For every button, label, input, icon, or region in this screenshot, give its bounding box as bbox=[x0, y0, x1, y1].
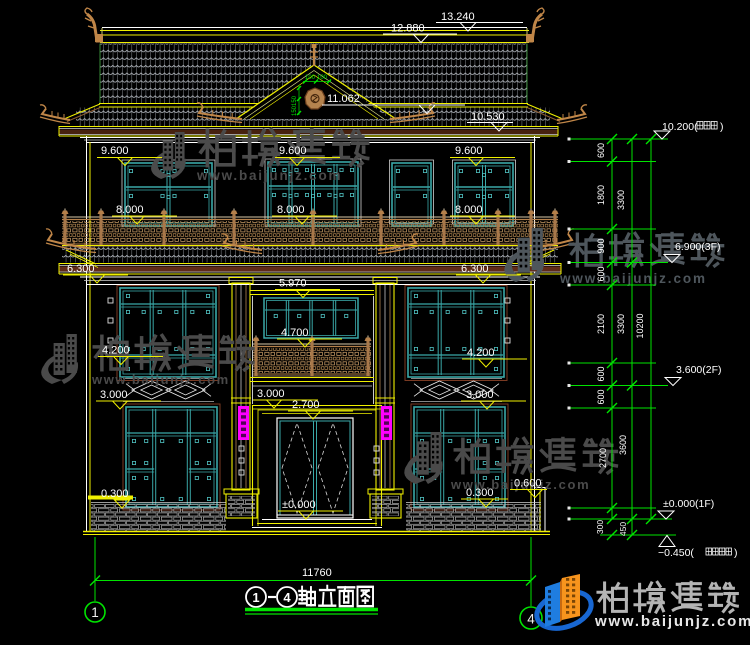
svg-text:3300: 3300 bbox=[616, 314, 626, 334]
svg-text:6.300: 6.300 bbox=[461, 263, 489, 275]
svg-text:10.530: 10.530 bbox=[471, 111, 505, 123]
svg-text:±0.000(1F): ±0.000(1F) bbox=[663, 498, 714, 510]
svg-text:2.700: 2.700 bbox=[292, 399, 320, 411]
svg-text:−0.450(: −0.450( bbox=[658, 547, 694, 559]
svg-text:6.900(3F): 6.900(3F) bbox=[675, 241, 721, 253]
svg-text:www.baijunjz.com: www.baijunjz.com bbox=[196, 168, 342, 183]
svg-text:1800: 1800 bbox=[596, 185, 606, 205]
svg-text:8.000: 8.000 bbox=[116, 204, 144, 216]
svg-text:3.000: 3.000 bbox=[100, 389, 128, 401]
svg-text:9.600: 9.600 bbox=[455, 145, 483, 157]
svg-text:3.000: 3.000 bbox=[257, 388, 285, 400]
svg-text:2700: 2700 bbox=[598, 448, 608, 468]
svg-text:9.600: 9.600 bbox=[279, 145, 307, 157]
svg-text:11.062: 11.062 bbox=[327, 93, 360, 105]
svg-text:300: 300 bbox=[595, 520, 605, 534]
svg-text:www.baijunjz.com: www.baijunjz.com bbox=[91, 372, 230, 387]
svg-text:0.300: 0.300 bbox=[101, 488, 129, 500]
svg-text:100: 100 bbox=[317, 75, 328, 81]
svg-text:www.baijunjz.com: www.baijunjz.com bbox=[594, 613, 750, 630]
svg-text:450: 450 bbox=[618, 522, 628, 536]
svg-text:1: 1 bbox=[91, 605, 99, 620]
svg-text:600: 600 bbox=[596, 143, 606, 158]
svg-text:600: 600 bbox=[596, 266, 606, 281]
svg-text:): ) bbox=[720, 121, 724, 133]
svg-text:11760: 11760 bbox=[302, 567, 332, 579]
svg-text:10200: 10200 bbox=[635, 313, 645, 338]
svg-text:4: 4 bbox=[527, 612, 535, 627]
svg-text:6.300: 6.300 bbox=[67, 263, 95, 275]
svg-text:2100: 2100 bbox=[596, 314, 606, 334]
svg-text:4: 4 bbox=[283, 590, 291, 605]
svg-text:): ) bbox=[734, 547, 738, 559]
svg-text:3300: 3300 bbox=[616, 190, 626, 210]
svg-text:1: 1 bbox=[252, 590, 259, 605]
svg-text:600: 600 bbox=[596, 366, 606, 381]
svg-text:0.300: 0.300 bbox=[466, 487, 494, 499]
svg-text:600: 600 bbox=[596, 389, 606, 404]
svg-text:3.600(2F): 3.600(2F) bbox=[676, 364, 722, 376]
svg-text:4.200: 4.200 bbox=[102, 345, 130, 357]
svg-text:www.baijunjz.com: www.baijunjz.com bbox=[559, 271, 707, 286]
svg-text:0.600: 0.600 bbox=[514, 478, 542, 490]
svg-text:4.200: 4.200 bbox=[467, 347, 495, 359]
svg-text:9.600: 9.600 bbox=[101, 145, 129, 157]
svg-text:4.700: 4.700 bbox=[281, 327, 309, 339]
svg-text:12.880: 12.880 bbox=[391, 23, 425, 35]
svg-text:8.000: 8.000 bbox=[455, 204, 483, 216]
svg-text:±0.000: ±0.000 bbox=[282, 499, 316, 511]
svg-text:3600: 3600 bbox=[618, 435, 628, 455]
svg-text:8.000: 8.000 bbox=[277, 204, 305, 216]
svg-text:3.000: 3.000 bbox=[466, 389, 494, 401]
svg-text:13.240: 13.240 bbox=[441, 11, 475, 23]
svg-text:5.970: 5.970 bbox=[279, 278, 307, 290]
svg-text:900: 900 bbox=[596, 238, 606, 253]
